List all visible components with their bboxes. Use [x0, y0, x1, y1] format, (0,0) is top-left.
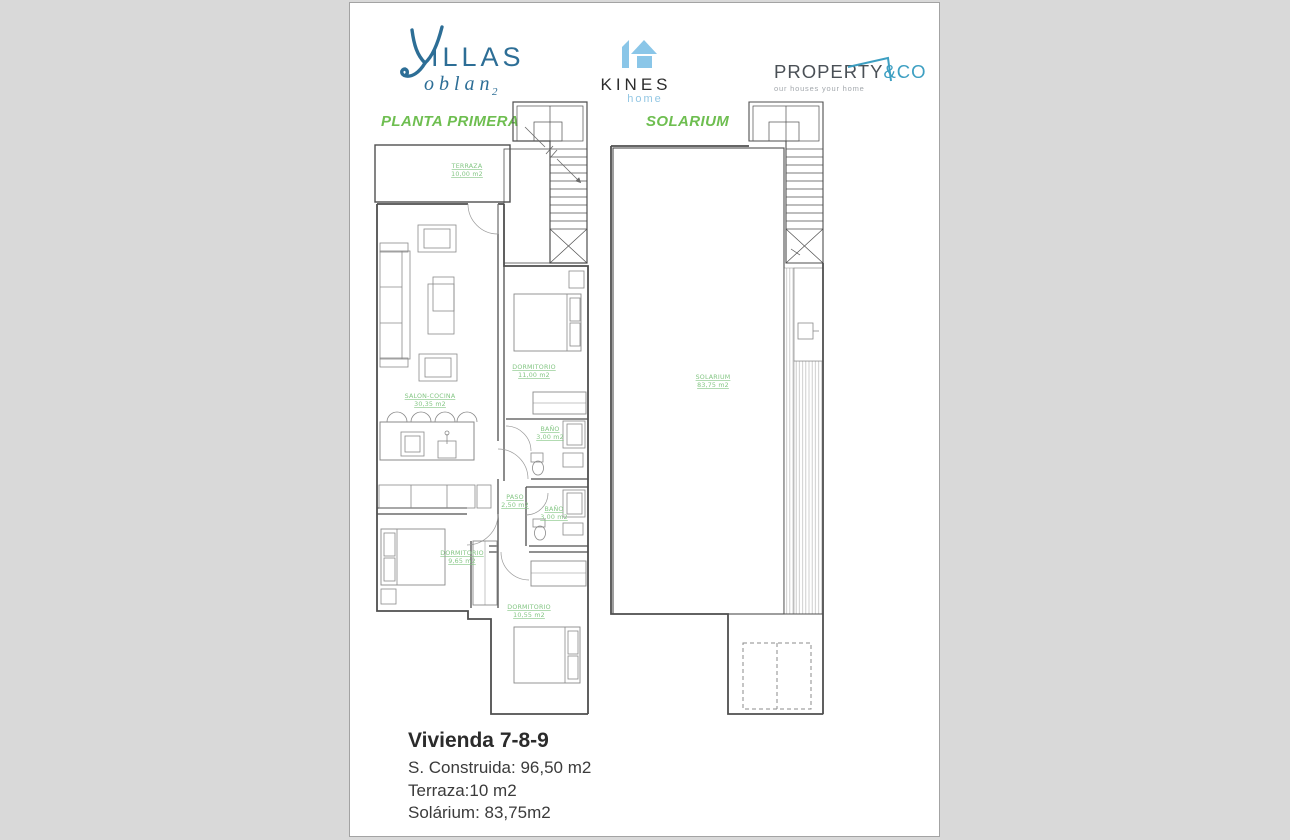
dwelling-summary: Vivienda 7-8-9 S. Construida: 96,50 m2 T…	[408, 729, 591, 825]
room-area: 10,55 m2	[513, 612, 545, 619]
page-background: ILLAS oblan 2 KINES home PROPERTY&CO our…	[0, 0, 1290, 840]
room-label: DORMITORIO	[512, 364, 555, 371]
room-label: BAÑO	[544, 504, 563, 513]
room-labels: SOLARIUM 83,75 m2	[694, 372, 733, 389]
plan-sheet: ILLAS oblan 2 KINES home PROPERTY&CO our…	[349, 2, 940, 837]
room-label: DORMITORIO	[507, 604, 550, 611]
apartment-inner-walls	[377, 204, 588, 608]
room-label: TERRAZA	[451, 163, 483, 170]
room-area: 30,35 m2	[414, 401, 446, 408]
room-labels: TERRAZA 10,00 m2 SALON-COCINA 30,35 m2 D…	[405, 161, 568, 619]
apartment-outer-walls	[377, 204, 588, 714]
room-label: SOLARIUM	[696, 374, 731, 381]
solarium-floorplan: SOLARIUM 83,75 m2	[604, 97, 834, 727]
property-tagline: our houses your home	[774, 84, 924, 93]
bedroom1-furniture	[514, 271, 586, 414]
solarium-area-line: Solárium: 83,75m2	[408, 802, 591, 825]
built-area-line: S. Construida: 96,50 m2	[408, 757, 591, 780]
room-label: PASO	[506, 494, 523, 501]
property-wordmark: PROPERTY&CO	[774, 61, 924, 83]
kines-house-icon	[613, 31, 659, 69]
dwelling-title: Vivienda 7-8-9	[408, 729, 591, 753]
staircase-solarium	[749, 102, 823, 263]
room-area: 10,00 m2	[451, 171, 483, 178]
solarium-deck	[613, 148, 823, 714]
villas-joblan-logo: ILLAS oblan 2	[386, 23, 526, 101]
room-area: 9,65 m2	[448, 558, 476, 565]
room-area: 3,00 m2	[540, 514, 568, 521]
stair-direction-arrow	[525, 127, 580, 182]
terrace-area-line: Terraza:10 m2	[408, 780, 591, 803]
kines-name: KINES	[596, 75, 676, 95]
bedroom3-furniture	[514, 561, 586, 683]
planta-primera-floorplan: TERRAZA 10,00 m2 SALON-COCINA 30,35 m2 D…	[368, 97, 598, 727]
room-label: DORMITORIO	[440, 550, 483, 557]
room-label: BAÑO	[540, 424, 559, 433]
villas-wordmark: ILLAS	[431, 42, 525, 72]
staircase-left-plan	[513, 102, 587, 263]
room-label: SALON-COCINA	[405, 393, 456, 400]
room-area: 11,00 m2	[518, 372, 550, 379]
kines-logo: KINES home	[596, 31, 676, 107]
room-area: 3,00 m2	[536, 434, 564, 441]
bedroom2-furniture	[381, 529, 497, 605]
pergola-dashed-outline	[743, 643, 811, 709]
villas-submark: oblan	[424, 73, 495, 95]
property-roof-icon	[846, 54, 898, 84]
living-room-furniture	[379, 225, 491, 508]
room-area: 83,75 m2	[697, 382, 729, 389]
room-area: 2,50 m2	[501, 502, 529, 509]
